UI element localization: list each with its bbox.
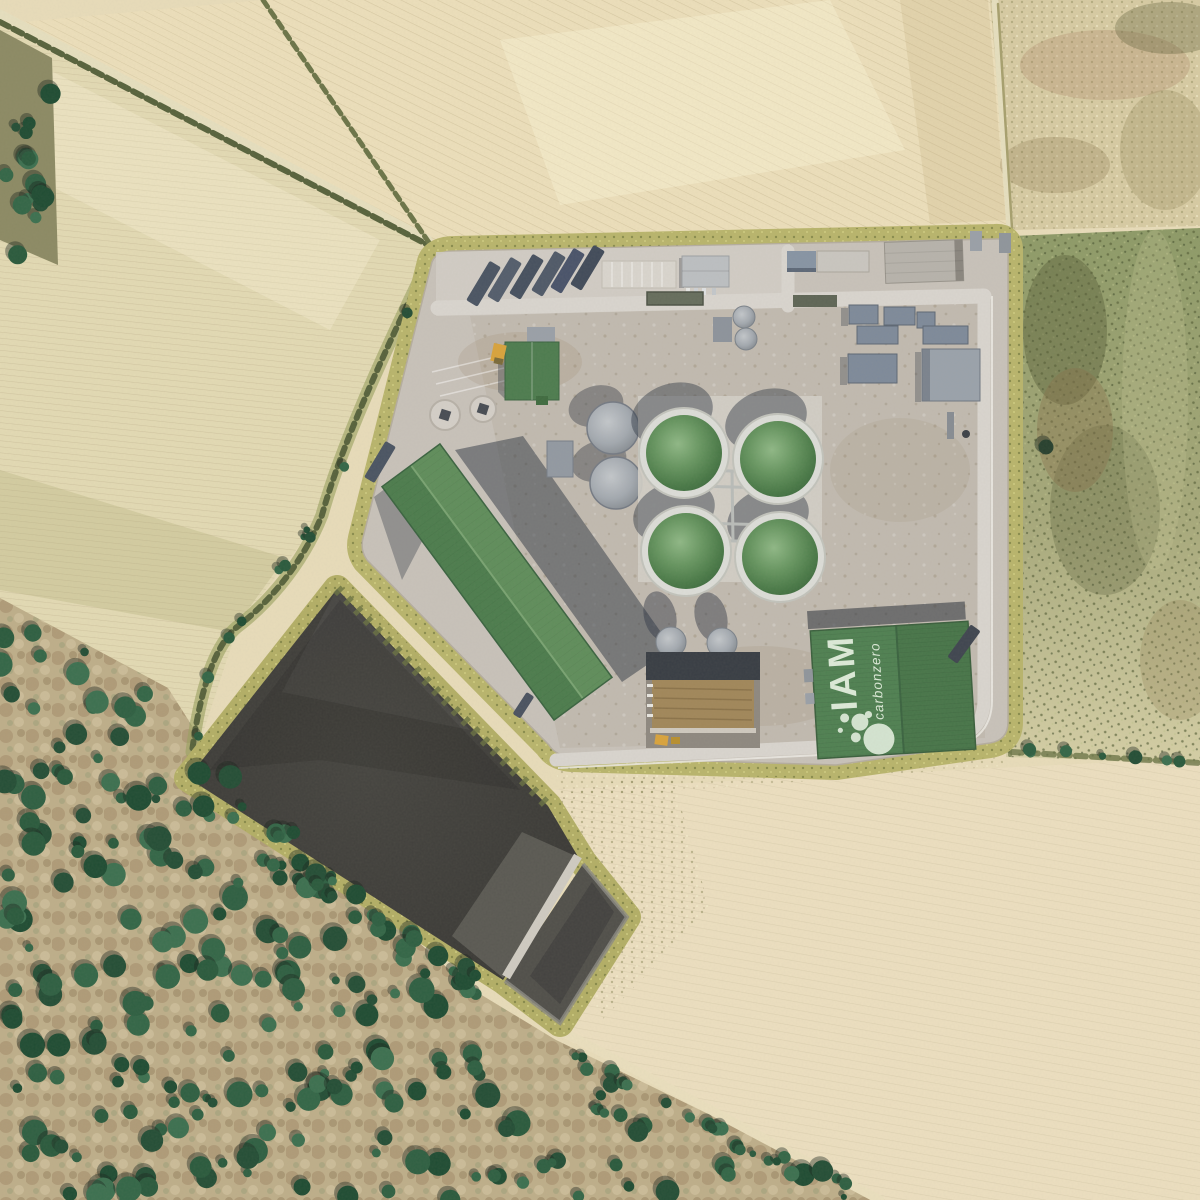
aerial-view: IAM carbonzero [0, 0, 1200, 1200]
photo-grain-overlay [0, 0, 1200, 1200]
aerial-screenshot: IAM carbonzero [0, 0, 1200, 1200]
